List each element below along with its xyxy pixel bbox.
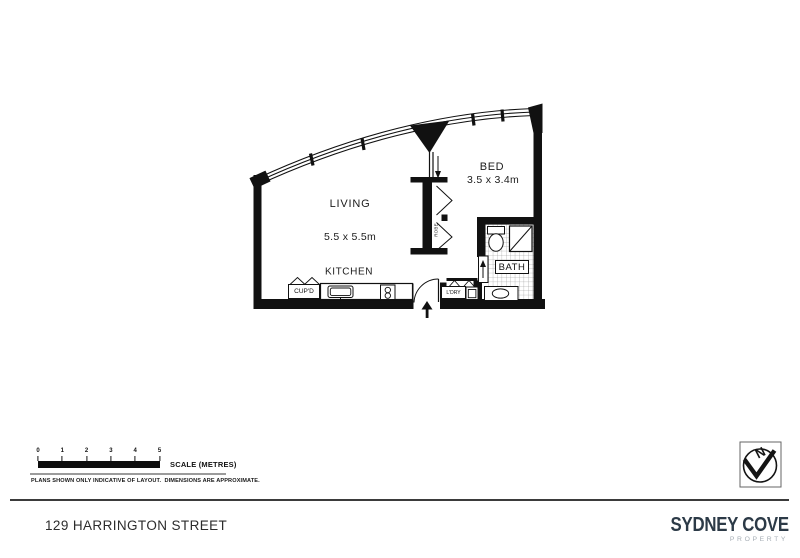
top-right-corner bbox=[528, 104, 543, 134]
robe-bifold-doors bbox=[437, 186, 453, 251]
entry-door bbox=[414, 279, 439, 303]
toilet bbox=[488, 227, 505, 252]
bath-label: BATH bbox=[495, 260, 529, 274]
scale-tick-label: 1 bbox=[61, 448, 64, 454]
scale-units-label: SCALE (METRES) bbox=[170, 460, 237, 469]
robe-label: ROBE bbox=[434, 223, 439, 237]
scale-gray-rule bbox=[30, 473, 226, 476]
scale-tick-label: 2 bbox=[85, 448, 88, 454]
scale-tick-label: 0 bbox=[36, 448, 39, 454]
left-wall bbox=[254, 175, 262, 309]
property-address: 129 HARRINGTON STREET bbox=[45, 518, 227, 533]
entry-arrow bbox=[422, 301, 433, 318]
kitchen-sink bbox=[328, 286, 353, 300]
shower bbox=[510, 226, 533, 252]
scale-bar-rule bbox=[38, 461, 161, 468]
living-room-label: LIVING bbox=[330, 198, 371, 210]
vanity-basin bbox=[485, 287, 519, 301]
cooktop bbox=[381, 285, 396, 300]
north-arrow-compass: N bbox=[739, 441, 782, 488]
agency-tagline: PROPERTY bbox=[648, 537, 789, 544]
agency-name: SYDNEY COVE bbox=[671, 515, 789, 535]
right-wall bbox=[534, 107, 543, 309]
agency-logo: SYDNEY COVE PROPERTY bbox=[648, 515, 789, 544]
bottom-wall-left bbox=[254, 299, 414, 309]
scale-tick-label: 3 bbox=[109, 448, 112, 454]
living-room-dims: 5.5 x 5.5m bbox=[324, 231, 376, 243]
scale-tick-label: 5 bbox=[158, 448, 161, 454]
plan-disclaimer: PLANS SHOWN ONLY INDICATIVE OF LAYOUT. D… bbox=[31, 478, 260, 484]
bedroom-label: BED bbox=[480, 161, 504, 173]
scale-tick-label: 4 bbox=[134, 448, 137, 454]
bath-door bbox=[479, 256, 489, 283]
column-triangle bbox=[410, 121, 450, 154]
kitchen-label: KITCHEN bbox=[325, 267, 373, 278]
sliding-door bbox=[430, 152, 442, 180]
laundry-label: L'DRY bbox=[441, 286, 466, 299]
window-mullions bbox=[311, 110, 504, 166]
bedroom-dims: 3.5 x 3.4m bbox=[467, 174, 519, 186]
footer-divider bbox=[10, 499, 789, 501]
cupboard-label: CUP'D bbox=[288, 284, 320, 299]
floorplan-page: LIVING 5.5 x 5.5m BED 3.5 x 3.4m KITCHEN… bbox=[0, 0, 800, 558]
